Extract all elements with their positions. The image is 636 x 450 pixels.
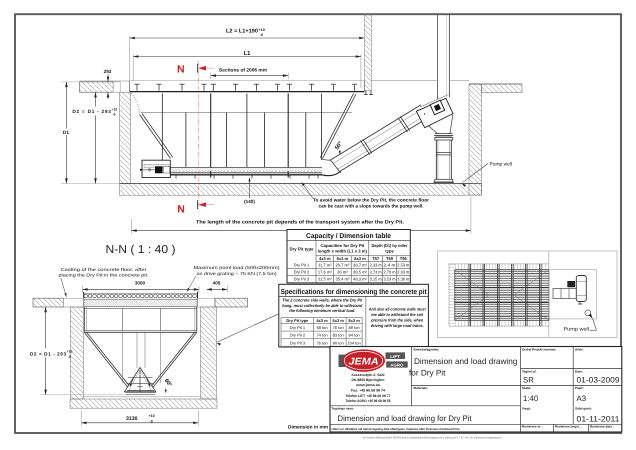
svg-text:6x3 m: 6x3 m [333,318,345,323]
svg-text:driving with large road trains: driving with large road trains. [371,323,424,328]
svg-text:(140): (140) [244,199,255,204]
svg-text:And also all concrete walls mu: And also all concrete walls must [368,306,426,311]
svg-text:The length of the concrete pit: The length of the concrete pit depends o… [196,219,405,225]
svg-text:www.jema.as: www.jema.as [355,383,380,387]
svg-text:3,23 m: 3,23 m [384,276,397,281]
svg-text:length x width (L1 x 3 m): length x width (L1 x 3 m) [318,249,368,254]
svg-text:Tegnet af:: Tegnet af: [522,369,537,373]
svg-text:+10: +10 [149,414,155,418]
svg-text:Capacity / Dimension table: Capacity / Dimension table [306,232,391,240]
svg-text:4x3 m: 4x3 m [316,318,328,323]
svg-text:3,15 m: 3,15 m [370,276,383,281]
svg-text:Arkiv:: Arkiv: [575,347,584,351]
svg-text:Dimension in mm: Dimension in mm [288,424,328,430]
svg-text:Sidst gemt:: Sidst gemt: [575,407,592,411]
svg-text:for Dry Pit: for Dry Pit [409,368,446,377]
svg-text:Pump well: Pump well [564,326,590,332]
svg-text:Uden vor tilladelse må denne t: Uden vor tilladelse må denne tegning ikk… [332,427,460,431]
svg-text:placing the Dry Pit in the con: placing the Dry Pit in the concrete pit. [59,273,149,278]
svg-text:2,4 m: 2,4 m [384,262,397,267]
svg-text:Casting of the concrete floor,: Casting of the concrete floor, after [61,267,148,272]
svg-text:pressure from the side, when: pressure from the side, when [370,317,423,322]
svg-text:38,7 m³: 38,7 m³ [353,262,368,267]
svg-text:+10: +10 [67,350,73,354]
svg-text:Dry Pit type: Dry Pit type [286,318,309,323]
svg-text:Vægt:: Vægt: [522,407,531,411]
svg-text:76 ton: 76 ton [316,340,327,345]
svg-text:38,5 m³: 38,5 m³ [353,269,368,274]
svg-text:Maximum point load (500x200mm): Maximum point load (500x200mm) [194,265,281,270]
svg-text:2,79 m: 2,79 m [384,269,397,274]
svg-text:T96: T96 [400,256,408,261]
svg-text:104 ton: 104 ton [347,340,360,345]
svg-text:6x3 m: 6x3 m [337,256,349,261]
svg-text:L2 = L1+190: L2 = L1+190 [226,29,258,35]
svg-text:L1: L1 [244,51,252,57]
svg-text:Dimension and load drawing for: Dimension and load drawing for Dry Pit [338,414,473,423]
svg-text:76 ton: 76 ton [333,325,344,330]
svg-text:Dry Pit type: Dry Pit type [290,246,315,251]
svg-text:Skala:: Skala: [522,386,531,390]
svg-text:N: N [177,203,185,215]
svg-text:Telefon AGRO +45 86 68 08 55: Telefon AGRO +45 86 68 08 55 [346,399,391,403]
svg-text:Dry Pit 2: Dry Pit 2 [290,333,306,338]
svg-text:3130: 3130 [126,416,138,422]
svg-text:11,7 m³: 11,7 m³ [318,262,332,267]
svg-text:28 m³: 28 m³ [337,269,348,274]
svg-text:4x3 m: 4x3 m [319,256,331,261]
svg-text:Telefon LIFT +45 86 68 08 7: Telefon LIFT +45 86 68 08 77 [346,394,391,398]
svg-text:N: N [177,64,185,76]
svg-text:01-11-2011: 01-11-2011 [577,414,620,423]
svg-text:01-03-2009: 01-03-2009 [577,376,620,385]
svg-text:Capacities for Dry Pit: Capacities for Dry Pit [320,243,365,248]
svg-text:Materiale:: Materiale: [414,386,428,390]
svg-text:-5: -5 [68,355,71,359]
svg-text:Revisions dato :: Revisions dato : [590,425,614,429]
svg-text:Dry Pit 3: Dry Pit 3 [294,276,310,281]
svg-text:3,36 m: 3,36 m [397,276,410,281]
svg-text:Pump well: Pump well [490,161,513,167]
svg-text:8x3 m: 8x3 m [354,256,366,261]
svg-text:Dry Pit 2: Dry Pit 2 [294,269,310,274]
svg-text:type: type [385,249,394,254]
svg-text:LIFT: LIFT [390,354,401,359]
svg-text:293: 293 [104,69,112,74]
svg-text:83 ton: 83 ton [333,333,344,338]
svg-text:DK-8850 Bjerringbro: DK-8850 Bjerringbro [352,378,385,382]
svg-text:+10: +10 [259,28,265,32]
svg-text:58 ton: 58 ton [316,325,327,330]
svg-text:20,7 m³: 20,7 m³ [335,262,350,267]
svg-text:Tegnings navn:: Tegnings navn: [332,407,355,411]
svg-text:-0: -0 [150,420,153,424]
svg-text:D1: D1 [63,130,69,136]
svg-text:74 ton: 74 ton [316,333,327,338]
svg-text:2,33 m: 2,33 m [370,262,383,267]
svg-text:D2 = D1 - 293: D2 = D1 - 293 [30,351,66,356]
svg-text:Papir:: Papir: [575,386,584,390]
svg-text:Fax. +45 86 68 08 74: Fax. +45 86 68 08 74 [351,388,385,392]
svg-text:405: 405 [213,281,221,286]
svg-text:Sections of 2006 mm: Sections of 2006 mm [219,68,267,73]
svg-text:94 ton: 94 ton [349,333,360,338]
svg-text:Dato:: Dato: [575,369,583,373]
svg-text:17,6 m³: 17,6 m³ [318,269,333,274]
svg-text:35,4 m³: 35,4 m³ [335,276,350,281]
svg-text:90 ton: 90 ton [333,340,344,345]
svg-text:1:40: 1:40 [523,394,539,403]
svg-text:A3: A3 [577,394,587,403]
svg-text:me able to withstand the soil: me able to withstand the soil [371,312,424,317]
svg-text:AGRO: AGRO [390,362,403,367]
svg-text:the following minimum vertical: the following minimum vertical load. [289,308,355,313]
svg-text:Revisions bogst. :: Revisions bogst. : [555,425,582,429]
svg-text:SR: SR [523,376,534,385]
svg-text:2,73 m: 2,73 m [370,269,383,274]
svg-text:Ordre/ Projekt nummer:: Ordre/ Projekt nummer: [522,347,557,351]
svg-text:2,93 m: 2,93 m [397,269,410,274]
svg-text:+10: +10 [112,107,118,111]
svg-text:3000: 3000 [135,280,146,285]
svg-text:M:\Teknisk Afdeling\JEMA AGRO\: M:\Teknisk Afdeling\JEMA AGRO\Under udar… [363,435,503,439]
svg-text:Dimension and load drawing: Dimension and load drawing [414,357,518,366]
svg-text:Revisions nr. :: Revisions nr. : [522,425,543,429]
svg-text:D2 = D1 - 293: D2 = D1 - 293 [72,109,111,114]
svg-text:Dry Pit 1: Dry Pit 1 [294,262,310,267]
svg-text:Dry Pit 1: Dry Pit 1 [290,325,306,330]
svg-text:on drive grating ~ 75 KN (7,5: on drive grating ~ 75 KN (7,5 ton) [197,271,278,276]
svg-text:21,5 m³: 21,5 m³ [318,276,333,281]
svg-text:Emnebetegnelse:: Emnebetegnelse: [414,347,440,351]
svg-text:8x3 m: 8x3 m [348,318,360,323]
svg-text:To avoid water below the Dry P: To avoid water below the Dry Pit, the co… [313,197,429,202]
svg-text:-0: -0 [260,33,263,37]
svg-text:Kassenvejen 2, Sahl: Kassenvejen 2, Sahl [352,373,385,377]
svg-text:-5: -5 [113,112,116,116]
svg-text:T57: T57 [372,256,380,261]
svg-text:Dry Pit 3: Dry Pit 3 [290,340,306,345]
svg-text:2,53 m: 2,53 m [397,262,410,267]
svg-text:48,3 m³: 48,3 m³ [353,276,368,281]
svg-text:T69: T69 [386,256,394,261]
svg-text:can be cast with a slope towar: can be cast with a slope towards the pum… [319,203,424,208]
svg-text:N-N ( 1 : 40 ): N-N ( 1 : 40 ) [106,244,176,256]
svg-text:JEMA: JEMA [349,356,379,367]
svg-text:89 ton: 89 ton [349,325,360,330]
svg-text:Specifications for dimensionin: Specifications for dimensioning the conc… [281,287,428,296]
svg-text:Depth (D1) by miler: Depth (D1) by miler [372,243,408,248]
